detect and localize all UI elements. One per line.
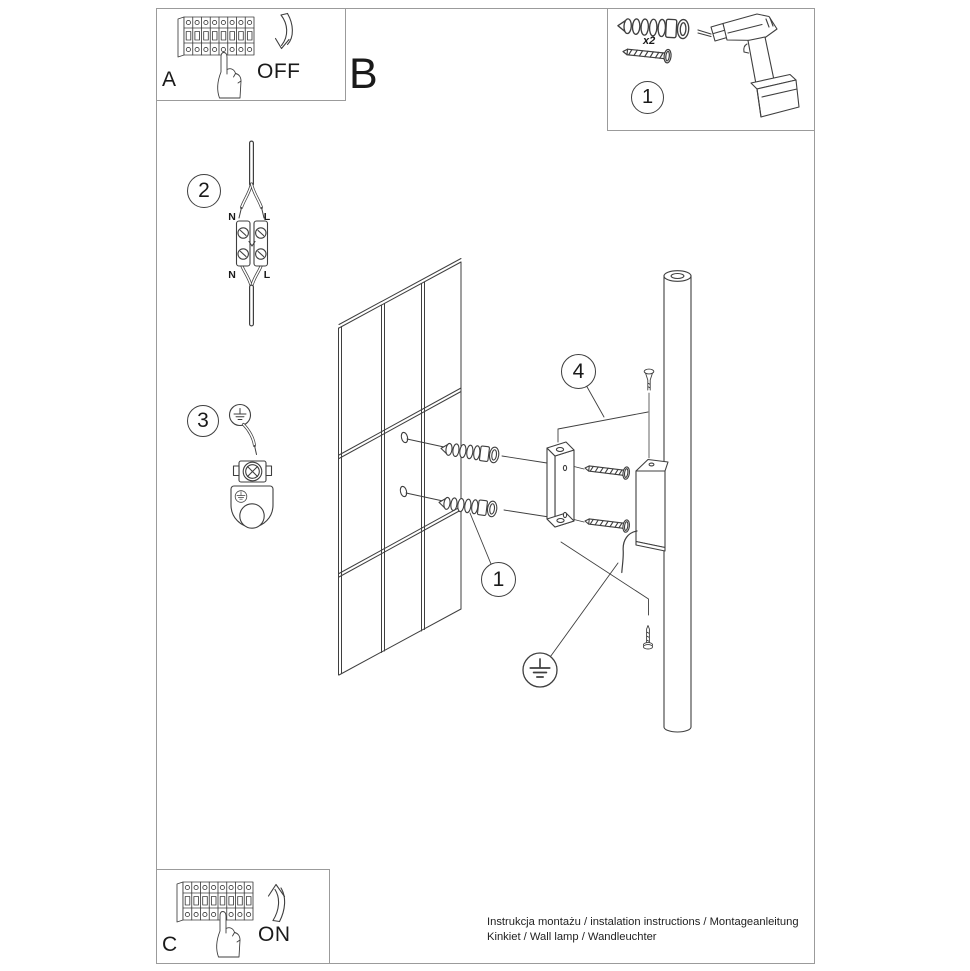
mounting-bracket	[547, 442, 574, 527]
instruction-line-art	[0, 0, 970, 971]
tiled-wall	[339, 259, 462, 676]
lamp-tube	[664, 271, 691, 732]
panel-a-letter: A	[162, 68, 176, 92]
step-badge-2: 2	[187, 174, 221, 208]
lamp-canopy	[636, 460, 668, 552]
panel-a-state-label: OFF	[257, 60, 301, 84]
step-badge-parts: 1	[631, 81, 664, 114]
wiring-diagram	[237, 143, 268, 324]
step-badge-4: 4	[561, 354, 596, 389]
panel-a-illustration	[178, 14, 292, 99]
section-b-letter: B	[349, 50, 378, 99]
terminal-label-n-bottom: N	[225, 269, 239, 281]
step-badge-1: 1	[481, 562, 516, 597]
footer-instructions: Instrukcja montażu / instalation instruc…	[487, 915, 799, 944]
ground-wire	[622, 531, 637, 573]
terminal-label-n-top: N	[225, 211, 239, 223]
footer-line-1: Instrukcja montażu / instalation instruc…	[487, 915, 799, 930]
canopy-screw-top	[644, 369, 654, 458]
instruction-sheet: { "page": { "title_letter_b": "B", "foot…	[0, 0, 970, 971]
drill-icon	[698, 14, 799, 117]
footer-line-2: Kinkiet / Wall lamp / Wandleuchter	[487, 930, 799, 945]
step-badge-3: 3	[187, 405, 219, 437]
grounding-diagram	[230, 405, 274, 529]
terminal-label-l-bottom: L	[260, 269, 274, 281]
earth-ground-symbol-main	[523, 653, 557, 687]
arrow-up-icon	[269, 885, 285, 922]
quantity-label: x2	[643, 35, 655, 47]
terminal-label-l-top: L	[260, 211, 274, 223]
panel-c-state-label: ON	[258, 923, 291, 947]
panel-c-letter: C	[162, 933, 177, 957]
canopy-screw-bottom	[643, 626, 652, 650]
arrow-down-icon	[276, 14, 293, 49]
